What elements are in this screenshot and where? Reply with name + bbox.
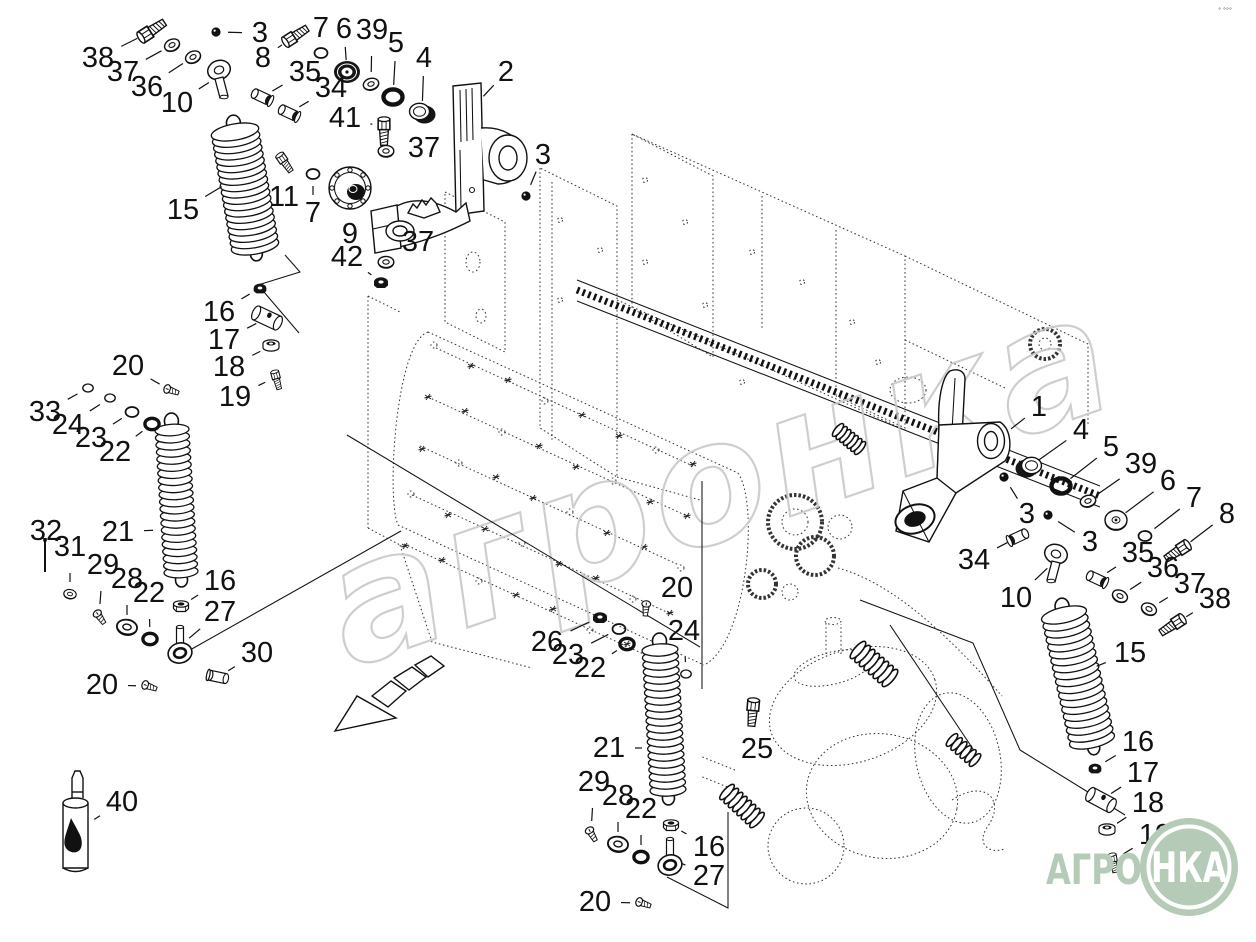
grease-tube (63, 771, 88, 872)
svg-text:34: 34 (958, 544, 990, 576)
callout-20: 20 (86, 669, 158, 701)
svg-text:4: 4 (416, 42, 432, 74)
watermark-text: агронка (299, 253, 1140, 706)
callout-30: 30 (205, 637, 273, 685)
svg-text:5: 5 (388, 27, 404, 59)
small-spring-3 (718, 782, 767, 829)
svg-text:27: 27 (204, 596, 236, 628)
callout-3: 3 (999, 472, 1035, 530)
spring-15-right (1040, 598, 1116, 755)
logo-text-prefix: АГРО (1046, 845, 1142, 894)
svg-text:39: 39 (1125, 448, 1157, 480)
svg-text:37: 37 (402, 226, 434, 258)
svg-text:15: 15 (167, 194, 199, 226)
svg-text:20: 20 (86, 669, 118, 701)
spring-21-middle (642, 633, 687, 805)
svg-text:6: 6 (336, 13, 352, 45)
svg-text:31: 31 (54, 531, 86, 563)
svg-text:10: 10 (161, 87, 193, 119)
svg-text:1: 1 (1031, 391, 1047, 423)
svg-text:15: 15 (1114, 637, 1146, 669)
callout-34: 34 (958, 527, 1031, 576)
callout-41: 41 (329, 102, 390, 145)
svg-text:42: 42 (331, 241, 363, 273)
small-spring-2 (848, 639, 900, 688)
callout-22: 22 (625, 793, 657, 863)
svg-text:4: 4 (1073, 414, 1089, 446)
svg-text:25: 25 (741, 733, 773, 765)
svg-text:21: 21 (102, 516, 134, 548)
svg-text:16: 16 (693, 831, 725, 863)
callout-21: 21 (102, 516, 153, 548)
svg-text:6: 6 (1160, 465, 1176, 497)
callout-11: 11 (269, 151, 299, 213)
svg-text:7: 7 (313, 12, 329, 44)
svg-text:20: 20 (579, 886, 611, 918)
svg-text:22: 22 (99, 436, 131, 468)
callout-20: 20 (112, 350, 180, 397)
svg-text:7: 7 (305, 197, 321, 229)
svg-text:19: 19 (219, 381, 251, 413)
svg-text:8: 8 (1219, 498, 1235, 530)
diagram-canvas: агронка (0, 0, 1256, 942)
svg-text:18: 18 (213, 351, 245, 383)
callout-20: 20 (579, 886, 652, 918)
svg-text:16: 16 (204, 565, 236, 597)
svg-text:22: 22 (133, 577, 165, 609)
callout-2: 2 (483, 56, 514, 96)
callout-39: 39 (356, 14, 388, 92)
svg-text:2: 2 (498, 56, 514, 88)
callout-22: 22 (99, 418, 159, 468)
svg-text:24: 24 (668, 615, 700, 647)
callout-4: 4 (410, 42, 436, 124)
callout-7: 7 (313, 12, 329, 58)
svg-text:3: 3 (1019, 498, 1035, 530)
svg-text:40: 40 (106, 786, 138, 818)
svg-text:20: 20 (661, 572, 693, 604)
svg-text:3: 3 (535, 139, 551, 171)
corner-marks: ° °°° (1218, 7, 1232, 14)
svg-text:30: 30 (241, 637, 273, 669)
svg-text:8: 8 (255, 42, 271, 74)
tensioner-bracket-top (371, 83, 527, 253)
callout-31: 31 (54, 531, 86, 600)
bearing-hub (329, 167, 371, 209)
svg-text:11: 11 (269, 181, 299, 213)
callout-10: 10 (161, 57, 233, 119)
callout-15: 15 (167, 187, 222, 226)
callout-21: 21 (593, 732, 642, 764)
callout-25: 25 (741, 697, 773, 765)
small-spring-4 (944, 732, 982, 768)
callout-22: 22 (133, 577, 165, 645)
svg-text:22: 22 (574, 652, 606, 684)
callout-7: 7 (305, 169, 321, 229)
svg-text:20: 20 (112, 350, 144, 382)
logo-text-circle: НКА (1151, 843, 1227, 892)
svg-text:17: 17 (1127, 757, 1159, 789)
svg-text:3: 3 (1082, 526, 1098, 558)
svg-text:37: 37 (408, 132, 440, 164)
svg-text:38: 38 (1199, 583, 1231, 615)
svg-text:22: 22 (625, 793, 657, 825)
svg-text:7: 7 (1186, 482, 1202, 514)
svg-text:18: 18 (1132, 787, 1164, 819)
parts-diagram-page: агронка (0, 0, 1256, 942)
svg-text:5: 5 (1103, 431, 1119, 463)
svg-text:21: 21 (593, 732, 625, 764)
callout-40: 40 (94, 786, 138, 819)
svg-text:34: 34 (315, 72, 347, 104)
svg-text:27: 27 (693, 860, 725, 892)
svg-text:36: 36 (131, 71, 163, 103)
callout-15: 15 (1097, 637, 1146, 669)
svg-text:16: 16 (1122, 726, 1154, 758)
spring-21-left (155, 413, 199, 587)
svg-text:41: 41 (329, 102, 361, 134)
svg-text:39: 39 (356, 14, 388, 46)
svg-text:10: 10 (1000, 582, 1032, 614)
